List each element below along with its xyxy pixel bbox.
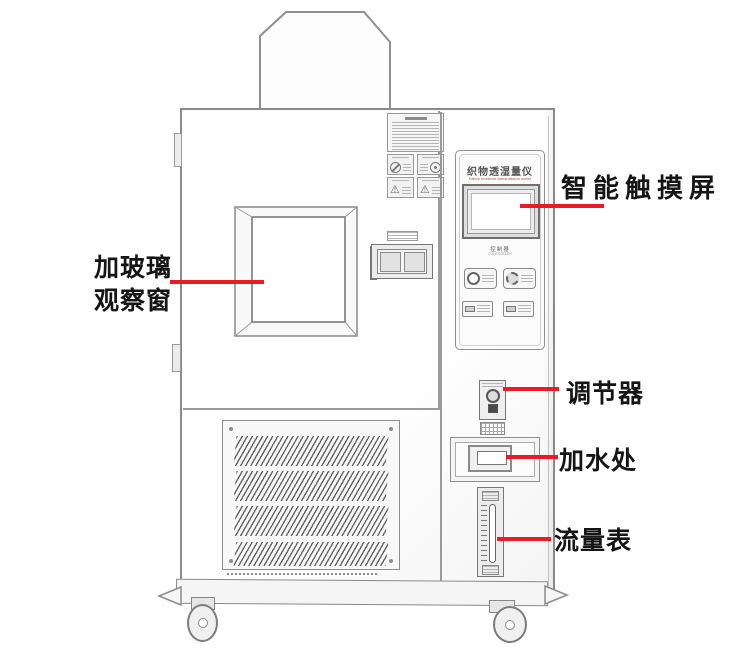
knob-icon — [506, 272, 519, 285]
callout-line-regulator — [503, 387, 559, 391]
sticker-header — [392, 157, 409, 160]
screw — [229, 559, 233, 563]
controller-label-en: CONTROLLER — [456, 252, 544, 256]
screw — [389, 559, 393, 563]
callout-label-touchscreen: 智能触摸屏 — [561, 168, 721, 205]
sticker-text — [402, 187, 411, 195]
power-button-icon — [467, 272, 480, 285]
regulator[interactable] — [479, 380, 506, 420]
regulator-window — [488, 404, 498, 413]
sticker-header — [392, 180, 409, 183]
nameplate — [387, 231, 418, 241]
product-diagram: ⚠ ⚠ 织物透湿量仪 Fabric moisture transmission … — [0, 0, 750, 662]
caster-wheel-left — [187, 604, 218, 642]
touch-screen-bezel — [467, 189, 535, 234]
toggle-icon — [506, 306, 516, 312]
callout-label-flowmeter: 流量表 — [554, 521, 632, 557]
warning-sticker-caution-1: ⚠ — [387, 177, 414, 198]
callout-label-window-line2: 观察窗 — [94, 285, 172, 318]
notice-plate-title-bar — [405, 117, 427, 120]
warning-triangle-icon: ⚠ — [420, 185, 430, 196]
callout-line-window — [170, 280, 264, 284]
louver-band — [233, 436, 388, 466]
switch-label — [477, 305, 490, 313]
toggle-icon — [465, 306, 475, 312]
warning-sticker-prohibition — [387, 154, 414, 175]
regulator-label — [482, 383, 503, 387]
flow-meter-tube — [489, 504, 496, 563]
door-hinge-bottom — [172, 344, 181, 372]
base-tab-left — [157, 585, 183, 607]
louver-band — [233, 506, 388, 536]
screw — [229, 427, 233, 431]
switch-box — [371, 244, 433, 279]
callout-line-flowmeter — [497, 537, 551, 541]
switch-box-recess — [377, 249, 427, 274]
callout-label-regulator: 调节器 — [566, 374, 644, 410]
flow-meter-bottom-cap — [482, 565, 499, 575]
touch-screen[interactable] — [462, 184, 540, 239]
notice-plate — [387, 113, 444, 152]
top-vent-hood — [258, 10, 392, 112]
notice-plate-text-lines — [392, 122, 439, 150]
regulator-vent-block — [480, 422, 505, 435]
base-tab-right — [543, 584, 569, 606]
louver-vent-panel — [222, 420, 400, 570]
observation-window — [234, 206, 358, 337]
sticker-text — [420, 164, 428, 172]
touch-screen-display — [471, 193, 531, 230]
caster-wheel-right — [493, 606, 527, 643]
light-switch[interactable] — [503, 301, 534, 317]
sticker-text — [403, 164, 411, 172]
panel-subtitle: Fabric moisture transmission meter — [456, 176, 544, 181]
louver-band — [234, 542, 389, 566]
adjust-knob[interactable] — [503, 268, 536, 289]
screw — [389, 427, 393, 431]
wheel-hub — [198, 618, 208, 628]
control-panel: 织物透湿量仪 Fabric moisture transmission mete… — [455, 150, 545, 350]
column-edge-line — [548, 116, 549, 586]
power-button[interactable] — [464, 268, 497, 289]
wheel-hub — [505, 620, 515, 630]
callout-label-water: 加水处 — [559, 441, 637, 477]
water-inlet[interactable] — [477, 451, 507, 465]
rocker-switch-right — [404, 252, 425, 272]
sticker-header — [422, 180, 439, 183]
fan-switch[interactable] — [462, 301, 493, 317]
door-hinge-top — [174, 133, 182, 167]
switch-label — [518, 305, 531, 313]
louver-band — [233, 471, 388, 501]
perforation-row — [227, 573, 377, 575]
rocker-switch-left — [380, 252, 401, 272]
warning-triangle-icon: ⚠ — [390, 185, 400, 196]
callout-label-window: 加玻璃 观察窗 — [94, 252, 172, 318]
regulator-knob[interactable] — [486, 389, 500, 403]
flow-meter-top-cap — [482, 491, 499, 501]
flow-meter — [477, 487, 504, 577]
prohibition-icon — [390, 162, 401, 173]
button-label — [521, 275, 533, 283]
button-label — [482, 275, 494, 283]
sticker-header — [422, 157, 439, 160]
callout-label-window-line1: 加玻璃 — [94, 252, 172, 285]
callout-line-water — [506, 455, 558, 459]
flow-meter-scale — [481, 505, 487, 562]
